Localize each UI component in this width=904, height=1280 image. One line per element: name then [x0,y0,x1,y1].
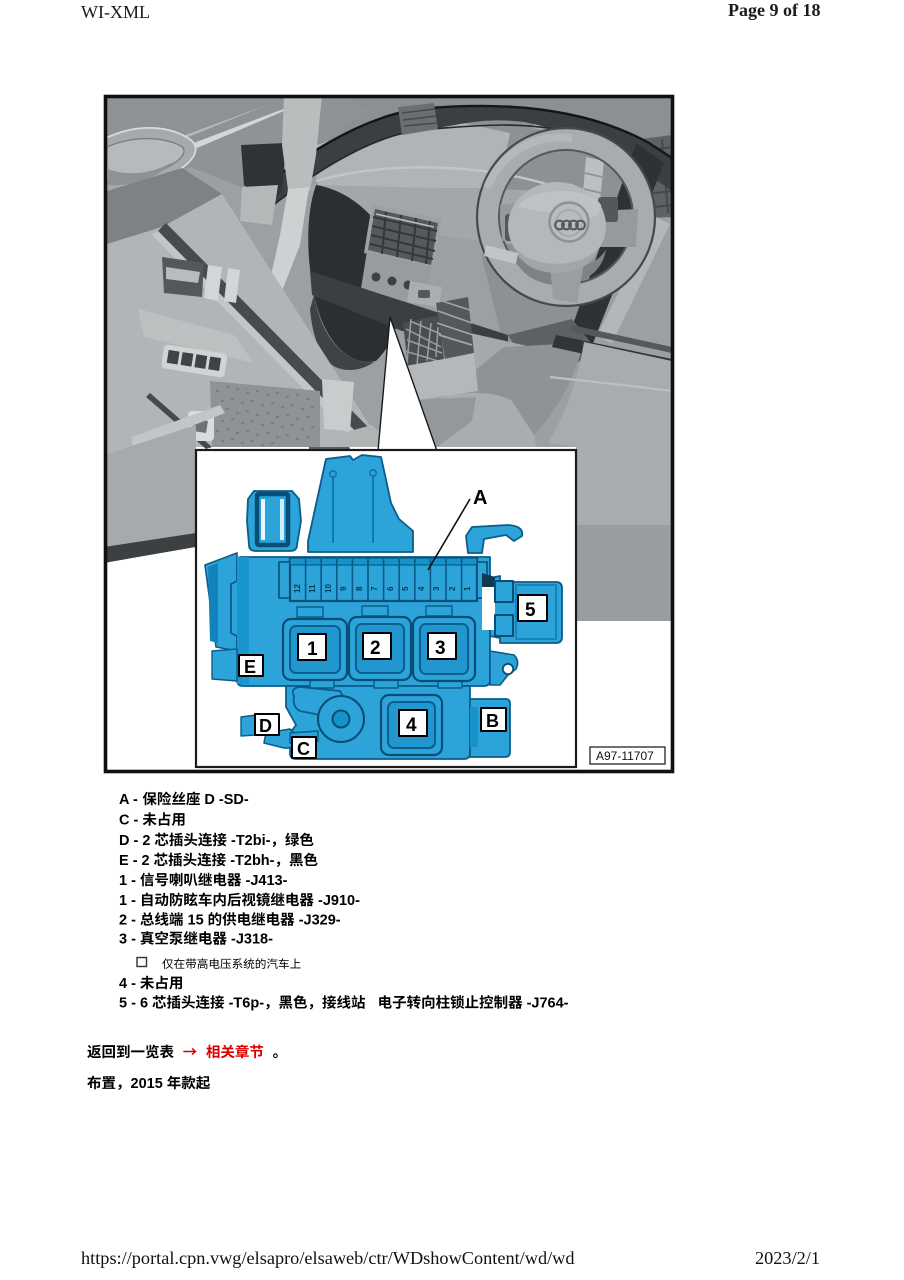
svg-text:5: 5 [525,600,536,621]
svg-text:1: 1 [307,639,318,660]
svg-text:C: C [297,739,310,759]
svg-text:B: B [486,711,499,731]
svg-text:2: 2 [370,638,381,659]
svg-text:A97-11707: A97-11707 [596,749,654,763]
svg-text:1: 1 [463,586,472,591]
svg-text:4: 4 [417,586,426,591]
svg-text:A -: A - [119,792,138,808]
svg-text:-J413-: -J413- [246,873,288,889]
svg-text:C -: C - [119,813,139,829]
svg-text:2 -: 2 - [119,913,136,929]
svg-text:9: 9 [339,586,348,591]
svg-text:2015: 2015 [131,1076,163,1092]
svg-text:D - 2: D - 2 [119,833,150,849]
svg-text:-J910-: -J910- [318,893,360,909]
svg-text:8: 8 [355,586,364,591]
svg-text:-T2bh-: -T2bh- [230,853,274,869]
svg-text:12: 12 [293,584,302,593]
svg-text:1 -: 1 - [119,893,136,909]
svg-text:-J764-: -J764- [527,996,569,1012]
svg-text:E - 2: E - 2 [119,853,150,869]
svg-text:4 -: 4 - [119,976,136,992]
svg-text:E: E [244,657,256,677]
svg-text:2: 2 [448,586,457,591]
svg-text:6: 6 [386,586,395,591]
svg-text:D -SD-: D -SD- [204,792,248,808]
svg-text:-T6p-: -T6p- [229,996,265,1012]
svg-text:1 -: 1 - [119,873,136,889]
svg-text:11: 11 [308,584,317,593]
svg-text:10: 10 [324,584,333,593]
svg-text:D: D [259,716,272,736]
svg-text:3: 3 [435,638,446,659]
svg-text:15: 15 [188,913,204,929]
svg-text:-J329-: -J329- [299,913,341,929]
svg-text:5 - 6: 5 - 6 [119,996,148,1012]
svg-text:3: 3 [432,586,441,591]
svg-text:-T2bi-: -T2bi- [231,833,271,849]
svg-text:-J318-: -J318- [231,932,273,948]
svg-text:5: 5 [401,586,410,591]
svg-text:A: A [473,487,487,509]
svg-text:4: 4 [406,715,417,736]
svg-text:3 -: 3 - [119,932,136,948]
svg-text:7: 7 [370,586,379,591]
